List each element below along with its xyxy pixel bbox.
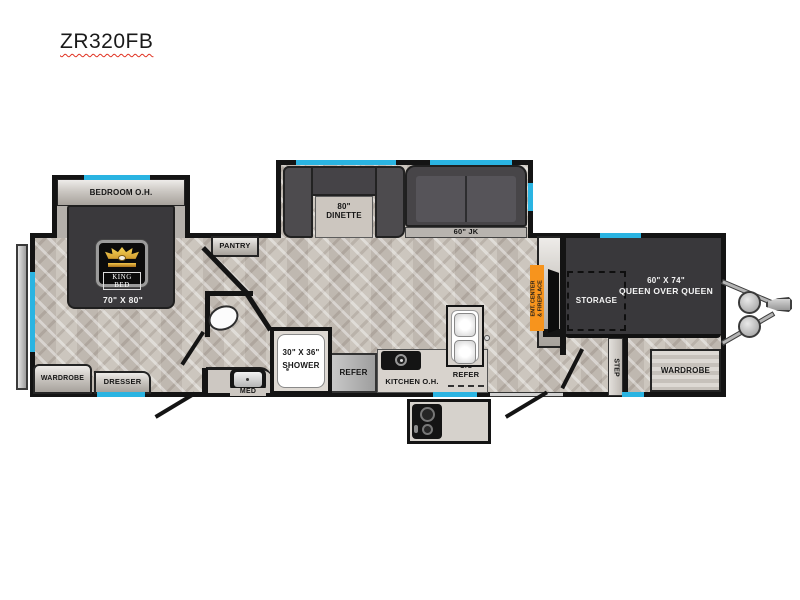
outdoor-burner-small-icon [422,424,433,435]
med-label: MED [230,388,266,396]
outdoor-knob [414,425,418,433]
bedroom-wardrobe: WARDROBE [33,364,92,394]
model-title: ZR320FB [60,30,153,54]
queen-bunk-bed: STORAGE 60" X 74" QUEEN OVER QUEEN [565,238,721,338]
rear-cap [16,244,28,390]
pantry-label: PANTRY [219,242,250,251]
dinette-label: DINETTE [316,211,372,220]
window-kitchen [433,392,477,397]
pantry: PANTRY [211,236,259,257]
sink-bowl-top [454,313,476,337]
bunk-wardrobe: WARDROBE [650,349,721,392]
king-bed: KING BED 70" X 80" [67,205,175,309]
window-sofa [430,160,512,165]
bedroom-wardrobe-label: WARDROBE [41,375,84,383]
bunkroom-wall-left [560,233,566,355]
os-refer-line2: REFER [446,371,486,380]
stove [381,351,421,370]
kitchen-sink-unit [446,305,484,367]
window-dresser [97,392,145,397]
entry-door-sill [490,392,563,397]
crown-base [108,263,136,267]
sofa-front-board: 60" JK [405,227,527,238]
refer-label: REFER [339,368,367,377]
outdoor-burner-large-icon [420,407,435,422]
os-refer-dashed-line [448,383,484,387]
tv [548,269,559,333]
floorplan-page: ZR320FB BEDROOM O.H. KING BED 70" X 80" … [0,0,800,600]
bunk-label: QUEEN OVER QUEEN [611,286,721,297]
window-rear-wall [30,272,35,352]
bedroom-oh-label: BEDROOM O.H. [90,188,153,197]
window-slide-end [528,183,533,211]
shower-size-label: 30" X 36" [278,348,324,357]
sofa-cushion-divider [465,176,467,222]
burner-dot [400,359,403,362]
shower: 30" X 36" SHOWER [270,327,332,395]
dinette-bench-right [375,166,405,238]
king-bed-size: 70" X 80" [69,295,177,306]
bunk-text: 60" X 74" QUEEN OVER QUEEN [611,276,721,297]
ent-center-line2: & FIREPLACE [537,266,544,330]
dinette-size-label: 80" [316,202,372,211]
dresser: DRESSER [94,371,151,394]
step-label: STEP [612,340,619,394]
outdoor-cooktop [412,404,442,439]
window-dinette [296,160,396,165]
outdoor-kitchen [407,399,491,444]
shower-pan: 30" X 36" SHOWER [277,334,325,388]
sofa [405,165,527,227]
bunk-size-label: 60" X 74" [611,276,721,286]
propane-tank-1 [738,291,761,314]
crown-gem [118,255,126,261]
sink-bowl-bottom [454,340,476,364]
dresser-label: DRESSER [104,378,142,387]
dinette-bench-left [283,166,313,238]
propane-tank-2 [738,315,761,338]
window-bunk-top [600,233,641,238]
refrigerator: REFER [330,353,377,393]
window-bedroom-slide [84,175,150,180]
step-wall-right [623,338,628,397]
king-bed-label: KING BED [103,272,141,290]
faucet-knob [484,335,490,341]
kitchen-oh-label: KITCHEN O.H. [379,378,445,387]
bunk-wardrobe-label: WARDROBE [661,366,710,375]
ent-center-fireplace: ENT. CENTER & FIREPLACE [530,265,544,331]
king-bed-logo: KING BED [96,240,148,287]
dinette-table: 80" DINETTE [315,196,373,238]
ent-center-label: ENT. CENTER & FIREPLACE [531,266,544,330]
sofa-label: 60" JK [454,228,479,237]
med-wall [202,368,208,397]
med-sink-drain [246,378,249,381]
bedroom-overhead-cabinet: BEDROOM O.H. [57,179,185,206]
step: STEP [608,338,623,396]
shower-drain [286,368,289,371]
window-bunk-bottom [622,392,644,397]
shower-label: SHOWER [278,361,324,370]
king-bed-badge: KING BED [103,272,141,292]
